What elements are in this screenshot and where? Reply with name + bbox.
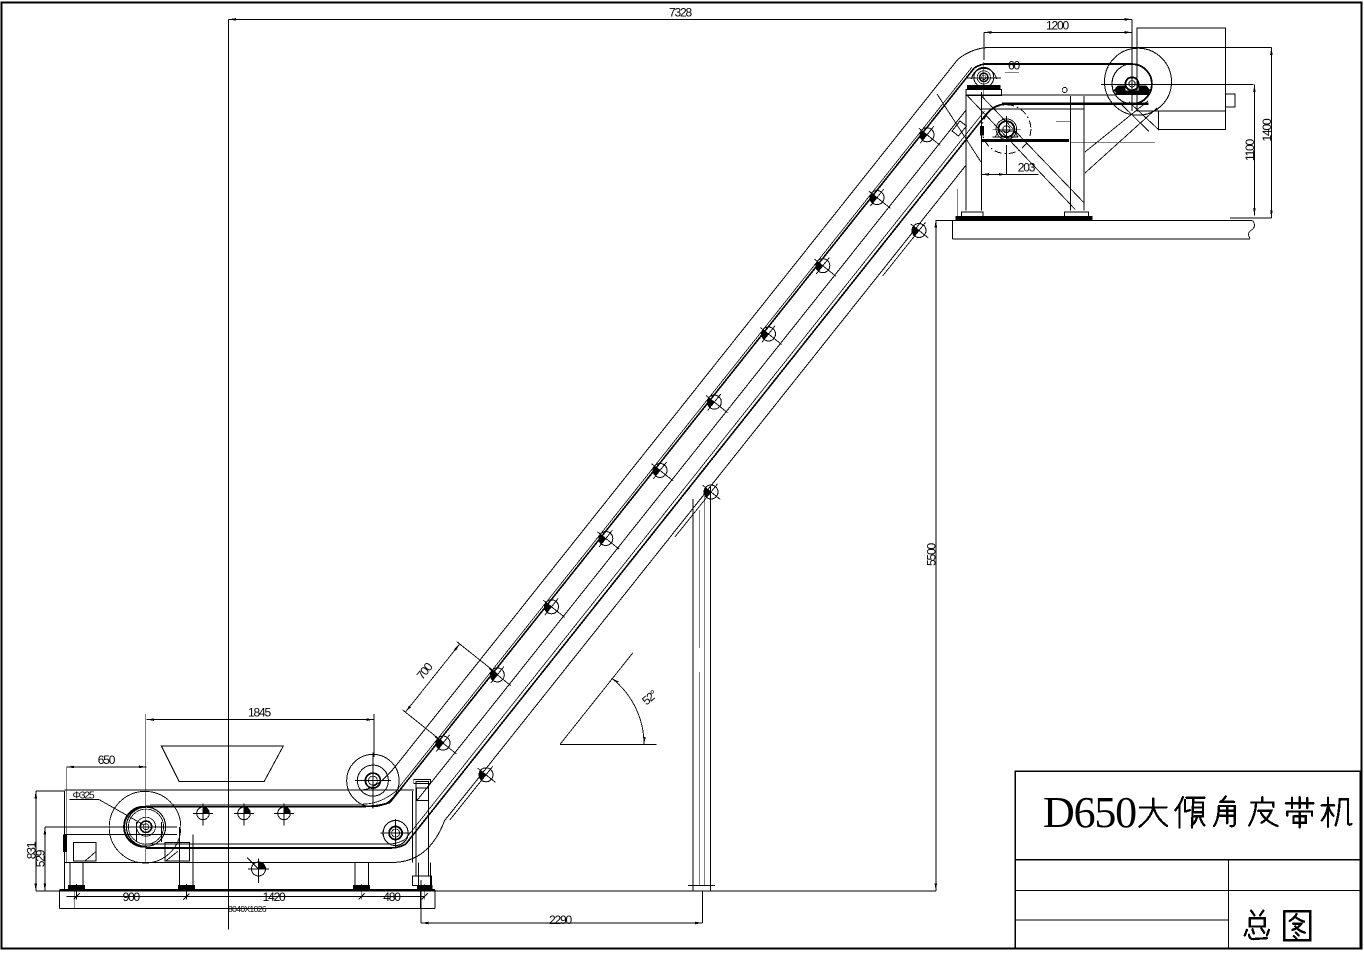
svg-text:1420: 1420	[263, 890, 286, 904]
svg-text:D650: D650	[1043, 788, 1136, 837]
svg-text:1845: 1845	[248, 706, 271, 720]
svg-text:480: 480	[383, 890, 401, 904]
svg-text:1200: 1200	[1046, 19, 1069, 33]
svg-text:900: 900	[123, 890, 141, 904]
svg-text:60: 60	[1008, 59, 1020, 73]
svg-text:7328: 7328	[669, 6, 692, 20]
svg-text:1400: 1400	[1260, 118, 1274, 141]
svg-text:1100: 1100	[1243, 138, 1257, 161]
svg-text:8040X1026: 8040X1026	[228, 904, 267, 914]
svg-text:650: 650	[98, 753, 116, 767]
svg-text:5500: 5500	[924, 543, 938, 566]
svg-text:529: 529	[33, 849, 47, 867]
svg-text:2290: 2290	[549, 913, 572, 927]
svg-text:203: 203	[1018, 161, 1036, 175]
